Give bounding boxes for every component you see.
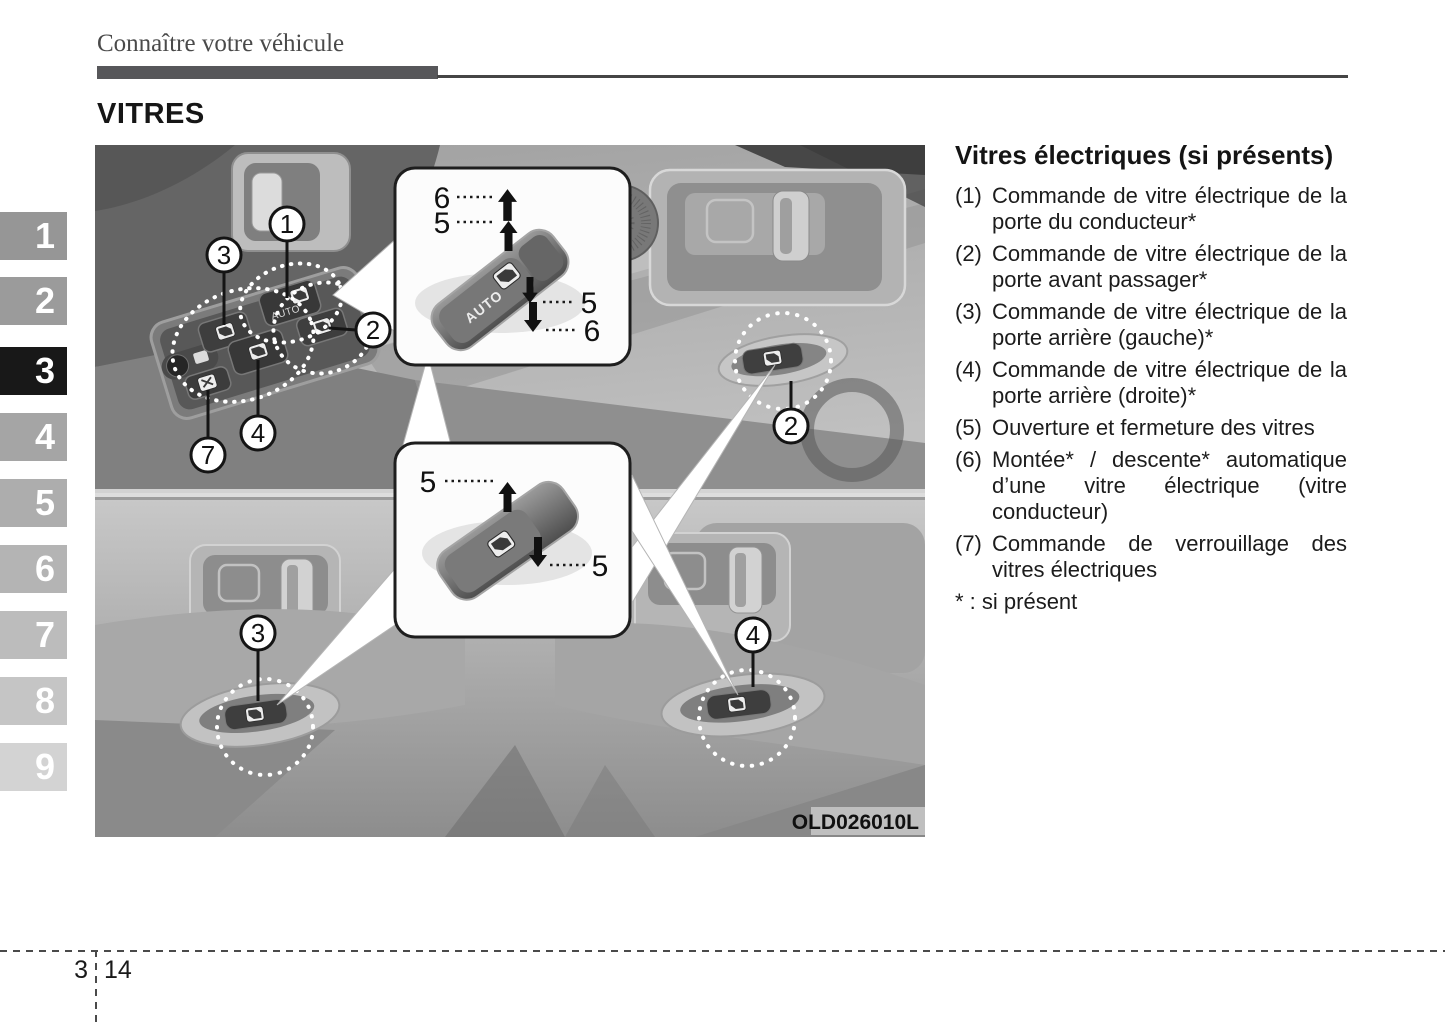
svg-text:4: 4 (746, 620, 760, 650)
chapter-tab-1: 1 (0, 212, 67, 260)
chapter-tab-2: 2 (0, 277, 67, 325)
list-item-2: (2) Commande de vitre électrique de la p… (955, 241, 1347, 293)
item-text: Commande de vitre électrique de la porte… (992, 241, 1347, 293)
svg-text:3: 3 (251, 618, 265, 648)
label-5-up: 5 (420, 466, 437, 499)
label-5-up: 5 (434, 207, 451, 240)
callout-3-cluster: 3 (207, 238, 241, 272)
footnote: * : si présent (955, 589, 1347, 615)
list-item-6: (6) Montée* / descente* automatique d’un… (955, 447, 1347, 525)
footer-page-number: 14 (104, 956, 132, 985)
item-text: Commande de verrouillage des vitres élec… (992, 531, 1347, 583)
list-item-5: (5) Ouverture et fermeture des vitres (955, 415, 1347, 441)
callout-4-cluster: 4 (241, 416, 275, 450)
figure-code: OLD026010L (792, 811, 919, 834)
svg-text:2: 2 (366, 315, 380, 345)
column-heading: Vitres électriques (si présents) (955, 140, 1347, 170)
item-number: (1) (955, 183, 992, 235)
footer-chapter-number: 3 (60, 956, 88, 985)
callout-3-rear-left-door: 3 (241, 616, 275, 650)
chapter-tab-3-active: 3 (0, 347, 67, 395)
header-rule-line (437, 75, 1348, 78)
item-number: (6) (955, 447, 992, 525)
chapter-tab-7: 7 (0, 611, 67, 659)
label-6-down: 6 (584, 315, 601, 348)
header-rule-bar (97, 66, 438, 79)
item-text: Commande de vitre électrique de la porte… (992, 299, 1347, 351)
svg-text:3: 3 (217, 240, 231, 270)
chapter-tab-5: 5 (0, 479, 67, 527)
item-text: Ouverture et fermeture des vitres (992, 415, 1347, 441)
item-number: (4) (955, 357, 992, 409)
item-text: Commande de vitre électrique de la porte… (992, 183, 1347, 235)
inset-auto-switch: AUTO 6 5 5 6 (395, 168, 630, 365)
item-text: Commande de vitre électrique de la porte… (992, 357, 1347, 409)
label-5-down: 5 (592, 550, 609, 583)
svg-text:7: 7 (201, 440, 215, 470)
manual-page: Connaître votre véhicule VITRES 1 2 3 4 … (0, 0, 1445, 1026)
window-controls-figure: AUTO (95, 145, 925, 837)
inset-manual-switch: 5 5 (395, 443, 630, 637)
footer-dashed-divider (95, 950, 97, 1026)
chapter-tab-9: 9 (0, 743, 67, 791)
callout-2-cluster: 2 (356, 313, 390, 347)
description-column: Vitres électriques (si présents) (1) Com… (955, 140, 1347, 615)
front-passenger-door (650, 170, 905, 305)
item-number: (3) (955, 299, 992, 351)
figure-illustration: AUTO (95, 145, 925, 837)
chapter-tab-4: 4 (0, 413, 67, 461)
item-number: (5) (955, 415, 992, 441)
callout-2-passenger-door: 2 (774, 409, 808, 443)
callout-7-lock: 7 (191, 438, 225, 472)
svg-text:1: 1 (280, 209, 294, 239)
svg-text:4: 4 (251, 418, 265, 448)
list-item-4: (4) Commande de vitre électrique de la p… (955, 357, 1347, 409)
chapter-tab-8: 8 (0, 677, 67, 725)
footer-dashed-rule (0, 950, 1445, 952)
item-text: Montée* / descente* automatique d’une vi… (992, 447, 1347, 525)
list-item-7: (7) Commande de verrouillage des vitres … (955, 531, 1347, 583)
item-number: (7) (955, 531, 992, 583)
chapter-tab-6: 6 (0, 545, 67, 593)
callout-4-rear-right-door: 4 (736, 618, 770, 652)
svg-text:2: 2 (784, 411, 798, 441)
list-item-1: (1) Commande de vitre électrique de la p… (955, 183, 1347, 235)
chapter-header: Connaître votre véhicule (97, 30, 344, 58)
section-title: VITRES (97, 98, 205, 131)
callout-1-driver-auto: 1 (270, 207, 304, 241)
item-number: (2) (955, 241, 992, 293)
list-item-3: (3) Commande de vitre électrique de la p… (955, 299, 1347, 351)
